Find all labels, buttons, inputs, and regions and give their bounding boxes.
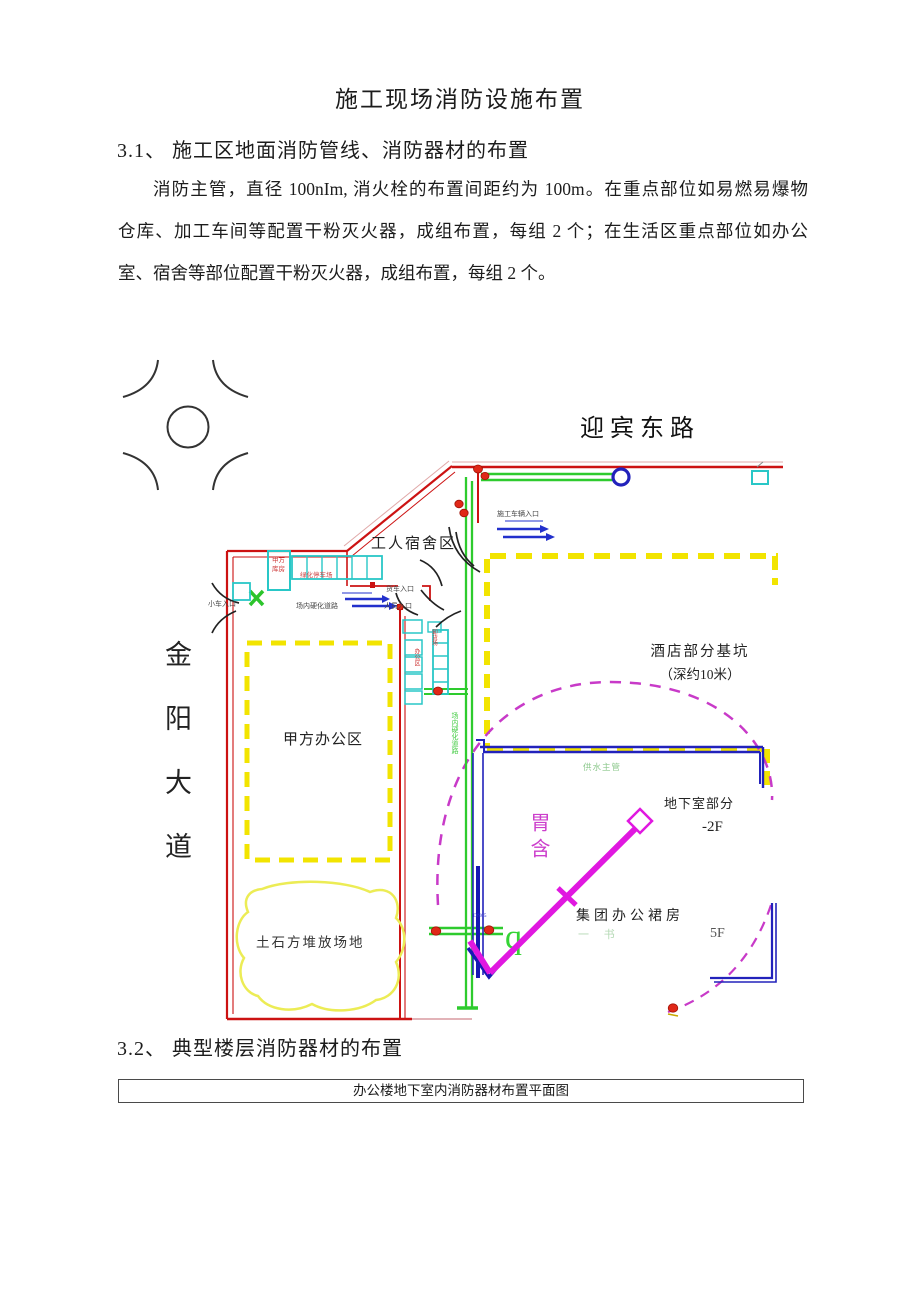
section-31-heading: 3.1、 施工区地面消防管线、消防器材的布置	[117, 134, 529, 163]
parking-strip-label: 绿化停车场	[300, 570, 333, 579]
pit-label-line2: （深约10米）	[660, 667, 741, 682]
basement-floor-label: -2F	[702, 819, 723, 835]
pit-label-line1: 酒店部分基坑	[651, 643, 750, 660]
tower-crane	[470, 809, 652, 973]
podium-floor-label: 5F	[710, 926, 725, 941]
figure-caption-box: 办公楼地下室内消防器材布置平面图	[118, 1079, 804, 1103]
party-a-office-label: 甲方办公区	[283, 731, 363, 748]
paragraph-line-2: 仓库、加工车间等配置干粉灭火器，成组布置，每组 2 个；在生活区重点部位如办公	[118, 210, 808, 252]
crane-magenta-label: 胃含	[527, 812, 550, 864]
basement-label: 地下室部分	[664, 796, 734, 811]
podium-label: 集团办公裙房	[576, 907, 684, 924]
blue-structure	[468, 469, 776, 982]
entrance-person-label: 人员入口	[384, 602, 412, 610]
site-plan-figure: 迎宾东路 金阳大道	[0, 345, 920, 1035]
hard-road-label: 场内硬化道路	[296, 601, 338, 610]
entrance-truck-label: 货车入口	[386, 584, 414, 593]
page-title: 施工现场消防设施布置	[0, 80, 920, 114]
warehouse-label-line2: 库房	[272, 564, 285, 573]
flow-arrows	[342, 521, 555, 610]
office-vertical-label: 办公区	[413, 647, 420, 666]
soil-area-label: 土石方堆放场地	[256, 935, 365, 950]
dn-label: DN65	[473, 913, 487, 919]
manhole-circle-icon	[613, 469, 629, 485]
section-32-heading: 3.2、 典型楼层消防器材的布置	[117, 1032, 403, 1061]
green-x-mark	[250, 591, 263, 605]
podium-faint-text: 一 书	[578, 928, 621, 941]
figure-caption: 办公楼地下室内消防器材布置平面图	[119, 1080, 803, 1102]
pipe-label: 供水主管	[583, 762, 621, 772]
hard-road-vertical-label: 场内硬化道路	[451, 711, 459, 755]
party-a-office-zone	[247, 643, 390, 860]
intersection-circle-icon	[168, 407, 209, 448]
unload-vertical-label: 卸货场	[431, 628, 438, 647]
intersection-symbol	[123, 360, 248, 490]
paragraph-line-3: 室、宿舍等部位配置干粉灭火器，成组布置，每组 2 个。	[118, 252, 808, 294]
paragraph-line-1: 消防主管，直径 100nIm, 消火栓的布置间距约为 100m。在重点部位如易燃…	[118, 168, 808, 210]
entrance-vehicle-label: 施工车辆入口	[497, 509, 539, 518]
worker-dorm-label: 工人宿舍区	[371, 535, 456, 552]
warehouse-label-line1: 甲方	[272, 555, 286, 564]
road-label-yingbin: 迎宾东路	[580, 415, 700, 442]
body-paragraph: 消防主管，直径 100nIm, 消火栓的布置间距约为 100m。在重点部位如易燃…	[118, 168, 808, 294]
entrance-car-label: 小车入口	[208, 599, 236, 608]
document-page: 施工现场消防设施布置 3.1、 施工区地面消防管线、消防器材的布置 消防主管，直…	[0, 0, 920, 1301]
road-label-jinyang: 金阳大道	[161, 640, 192, 896]
